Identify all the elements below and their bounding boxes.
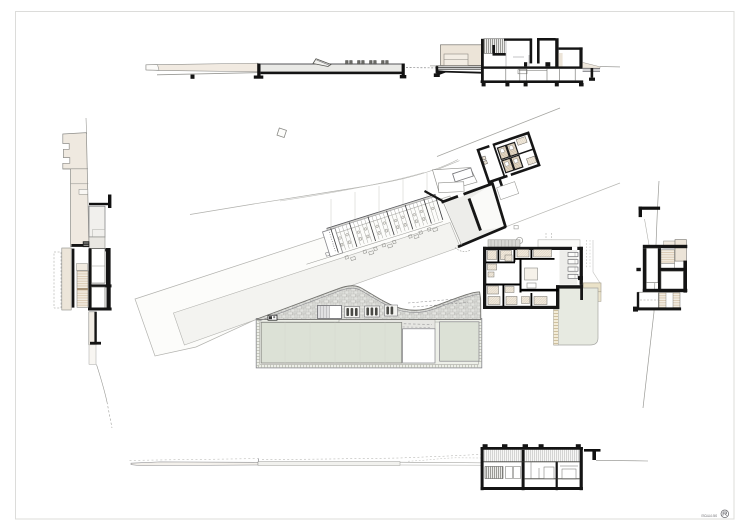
svg-text:ESCALA 1:500: ESCALA 1:500 — [702, 514, 718, 518]
